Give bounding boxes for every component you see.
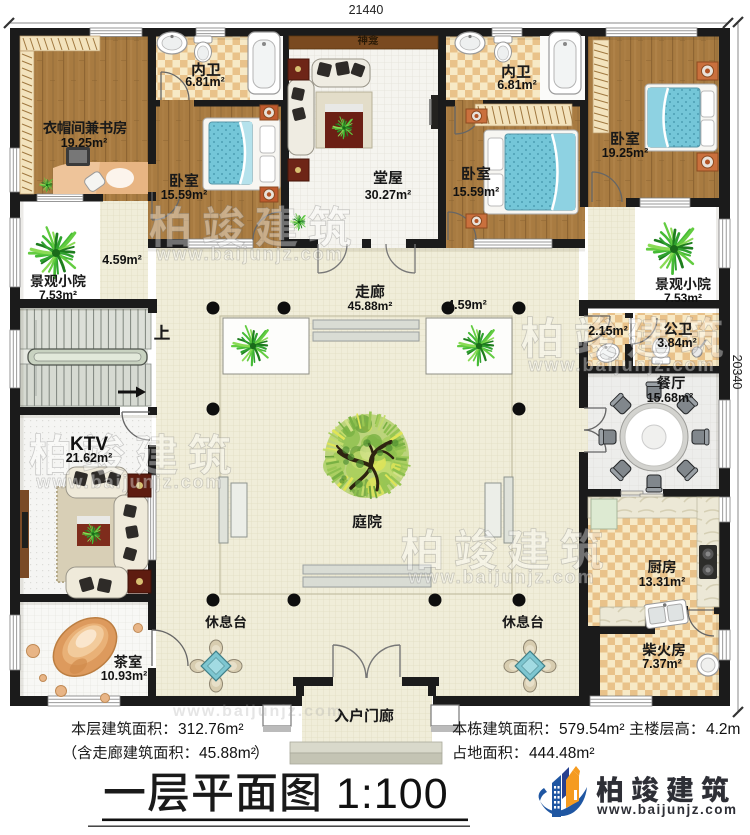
svg-text:3.84m²: 3.84m²: [657, 336, 697, 350]
svg-text:15.59m²: 15.59m²: [453, 185, 500, 199]
svg-text:www.baijunjz.com: www.baijunjz.com: [35, 472, 223, 492]
svg-text:www.baijunjz.com: www.baijunjz.com: [172, 703, 343, 720]
svg-text:45.88m²: 45.88m²: [199, 745, 256, 762]
svg-text:7.53m²: 7.53m²: [664, 291, 702, 305]
svg-text:6.81m²: 6.81m²: [185, 75, 225, 89]
svg-text:21440: 21440: [349, 3, 384, 17]
svg-text:15.59m²: 15.59m²: [161, 188, 208, 202]
svg-text:7.37m²: 7.37m²: [642, 657, 682, 671]
svg-text:4.2m: 4.2m: [706, 721, 740, 738]
svg-text:312.76m²: 312.76m²: [178, 721, 243, 738]
svg-text:19.25m²: 19.25m²: [61, 136, 108, 150]
svg-text:15.68m²: 15.68m²: [647, 391, 694, 405]
svg-text:www.baijunjz.com: www.baijunjz.com: [155, 244, 343, 264]
svg-text:45.88m²: 45.88m²: [348, 299, 393, 313]
svg-text:4.59m²: 4.59m²: [447, 298, 487, 312]
svg-text:2.15m²: 2.15m²: [588, 324, 628, 338]
svg-text:19.25m²: 19.25m²: [602, 146, 649, 160]
svg-text:444.48m²: 444.48m²: [529, 745, 594, 762]
svg-text:13.31m²: 13.31m²: [639, 575, 686, 589]
svg-text:21.62m²: 21.62m²: [66, 451, 113, 465]
svg-text:20340: 20340: [730, 355, 744, 390]
svg-text:www.baijunjz.com: www.baijunjz.com: [527, 355, 715, 375]
svg-text:7.53m²: 7.53m²: [39, 288, 77, 302]
svg-text:1:100: 1:100: [336, 770, 449, 818]
svg-text:30.27m²: 30.27m²: [365, 188, 412, 202]
svg-text:4.59m²: 4.59m²: [102, 253, 142, 267]
svg-text:6.81m²: 6.81m²: [497, 78, 537, 92]
svg-text:10.93m²: 10.93m²: [101, 669, 148, 683]
svg-text:www.baijunjz.com: www.baijunjz.com: [407, 567, 595, 587]
svg-text:www.baijunjz.com: www.baijunjz.com: [596, 802, 738, 817]
svg-text:579.54m²: 579.54m²: [559, 721, 624, 738]
